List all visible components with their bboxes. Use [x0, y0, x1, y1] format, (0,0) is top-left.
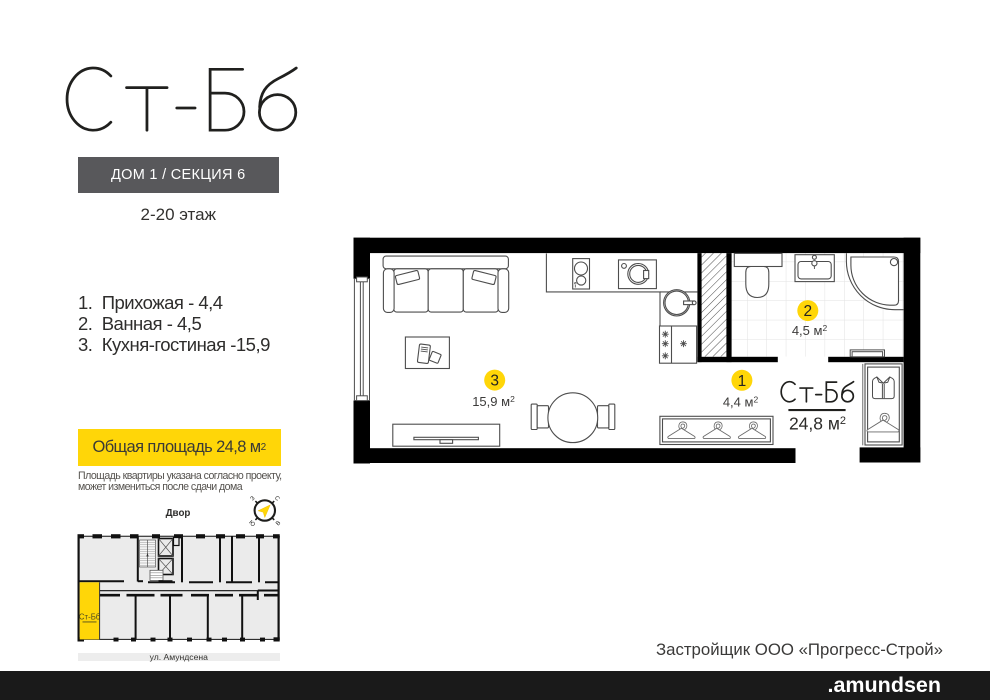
svg-text:2: 2	[803, 303, 812, 320]
svg-text:3: 3	[490, 373, 499, 390]
svg-text:15,9 м2: 15,9 м2	[472, 394, 515, 409]
svg-text:Ст-Бб: Ст-Бб	[79, 613, 101, 622]
svg-text:4,5 м2: 4,5 м2	[792, 323, 828, 338]
svg-text:24,8 м2: 24,8 м2	[789, 414, 846, 434]
svg-text:Ю: Ю	[247, 520, 256, 529]
svg-text:1: 1	[738, 373, 747, 390]
svg-text:В: В	[275, 520, 282, 527]
svg-text:4,4 м2: 4,4 м2	[723, 395, 759, 410]
